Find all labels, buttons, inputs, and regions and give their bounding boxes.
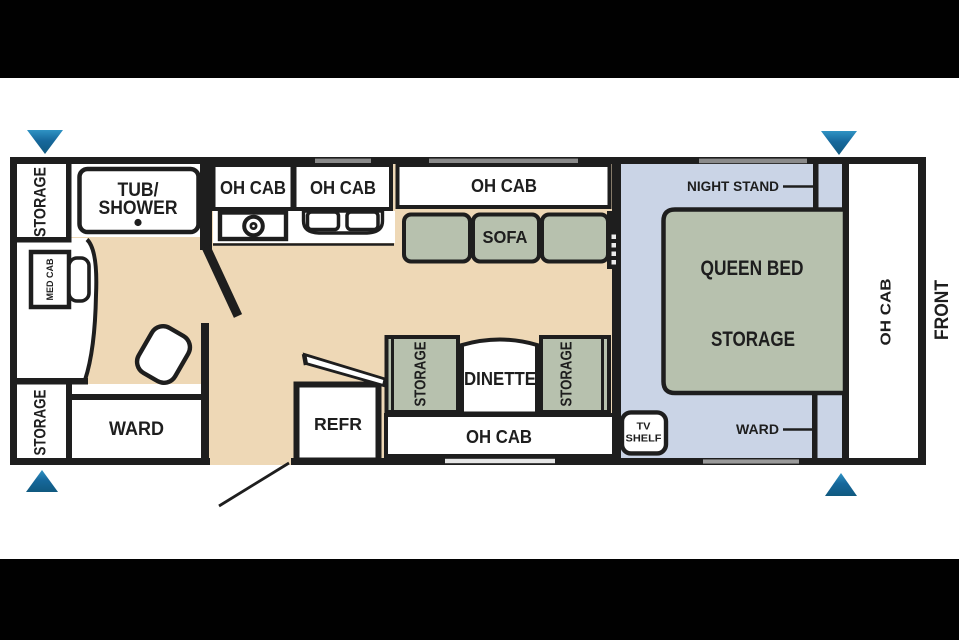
svg-text:STORAGE: STORAGE	[559, 341, 576, 406]
svg-text:SHELF: SHELF	[626, 434, 662, 445]
svg-text:OH CAB: OH CAB	[878, 278, 895, 345]
svg-text:DINETTE: DINETTE	[464, 368, 536, 389]
svg-text:REFR: REFR	[314, 414, 362, 434]
svg-text:FRONT: FRONT	[932, 280, 953, 340]
svg-text:OH CAB: OH CAB	[220, 178, 286, 198]
svg-text:SHOWER: SHOWER	[99, 198, 178, 219]
svg-text:NIGHT STAND: NIGHT STAND	[687, 178, 779, 194]
svg-text:WARD: WARD	[736, 421, 779, 437]
svg-text:STORAGE: STORAGE	[413, 341, 430, 406]
svg-text:TV: TV	[637, 422, 652, 433]
svg-text:SOFA: SOFA	[483, 227, 528, 247]
svg-text:STORAGE: STORAGE	[32, 390, 50, 456]
svg-text:QUEEN BED: QUEEN BED	[701, 257, 804, 280]
svg-text:STORAGE: STORAGE	[711, 328, 795, 351]
svg-text:OH CAB: OH CAB	[310, 178, 376, 198]
svg-text:OH CAB: OH CAB	[471, 176, 537, 196]
svg-text:MED CAB: MED CAB	[45, 258, 56, 300]
svg-text:WARD: WARD	[109, 419, 164, 440]
svg-text:OH CAB: OH CAB	[466, 427, 532, 447]
svg-text:STORAGE: STORAGE	[32, 167, 50, 237]
